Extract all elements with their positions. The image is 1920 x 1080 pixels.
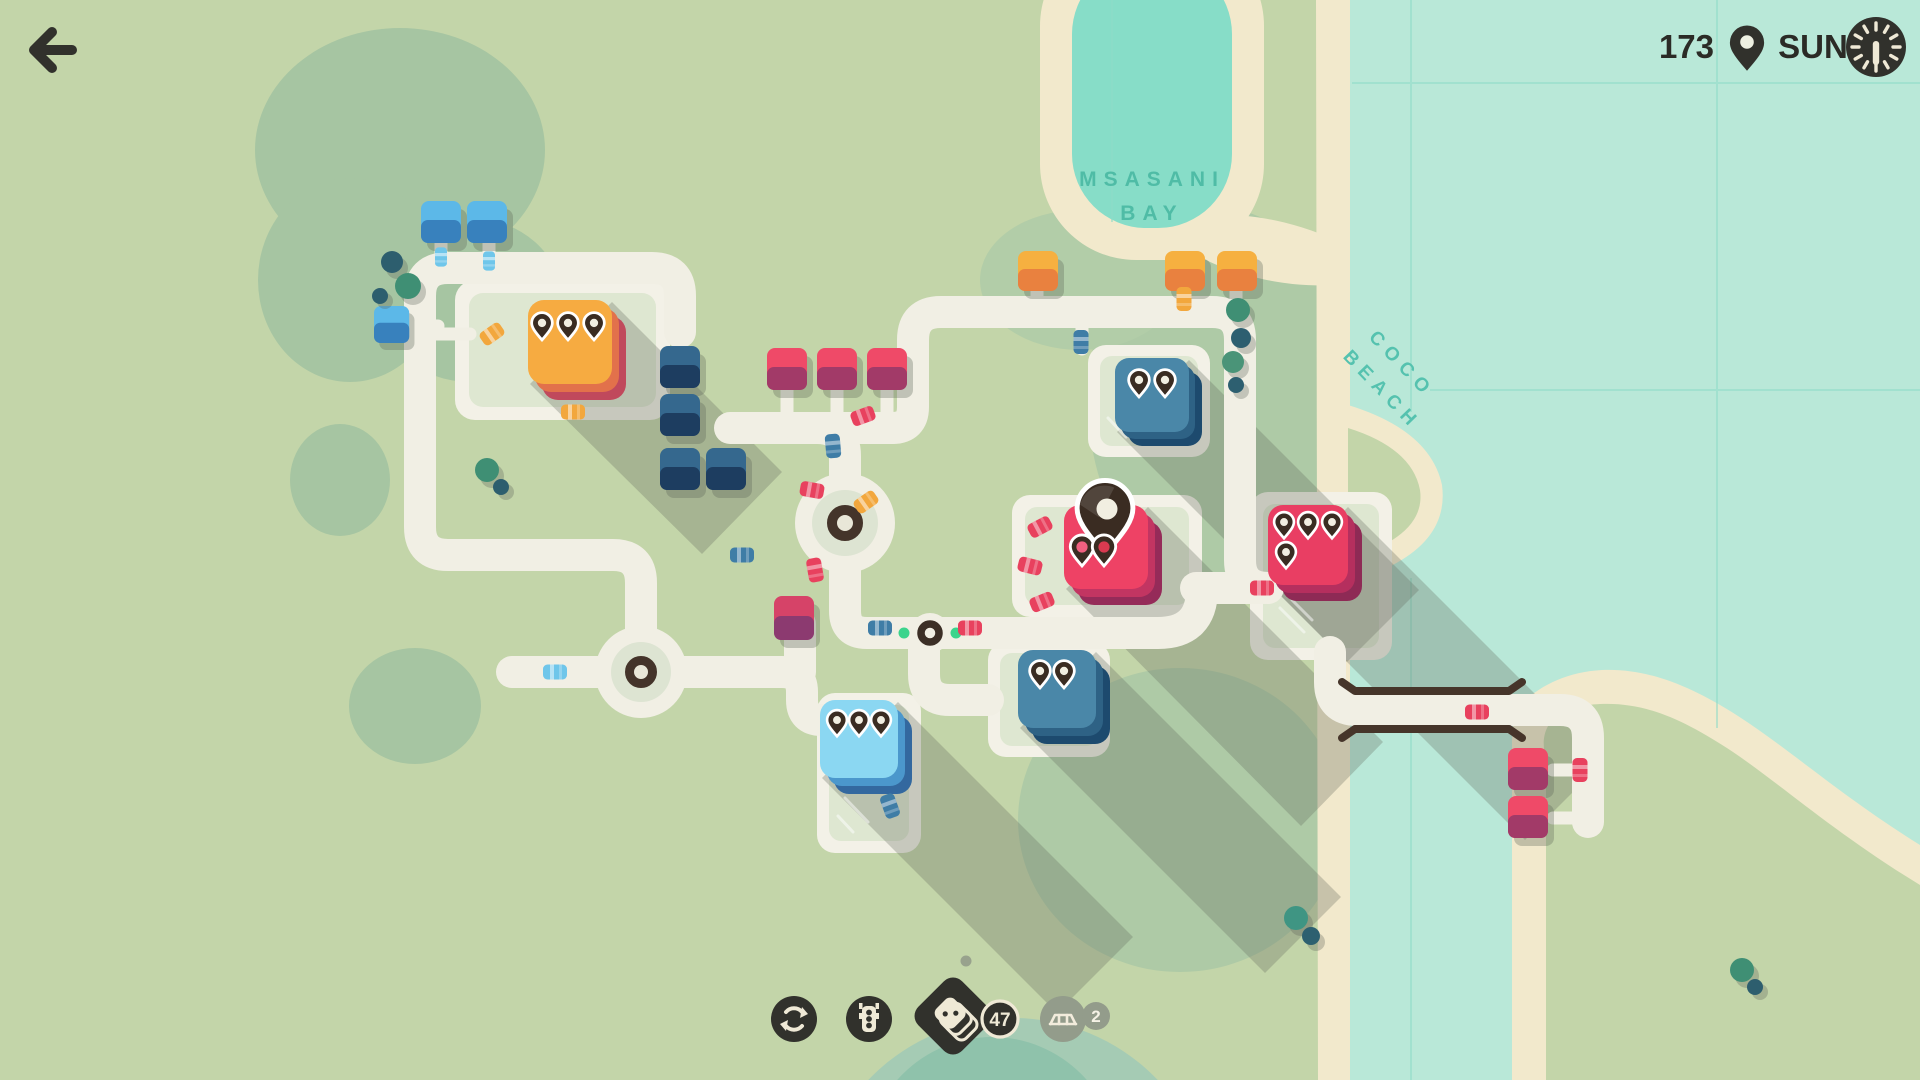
signal-green-west bbox=[899, 628, 910, 639]
bridges-count: 2 bbox=[1091, 1007, 1100, 1026]
game-map[interactable]: MSASANI BAY COCO BEACH bbox=[0, 0, 1920, 1080]
destination-crimson bbox=[1268, 505, 1362, 601]
bay-label-line1: MSASANI bbox=[1079, 168, 1225, 191]
clock-hand bbox=[1873, 41, 1879, 65]
page-indicator-dot bbox=[961, 956, 972, 967]
tiles-count: 47 bbox=[989, 1010, 1010, 1031]
destination-blue-south bbox=[1018, 650, 1110, 744]
roundabout-tool-button[interactable] bbox=[771, 996, 817, 1042]
roundabout-small bbox=[595, 626, 687, 718]
msasani-bay-water bbox=[1072, 0, 1232, 228]
trip-score: 173 bbox=[1659, 28, 1714, 65]
destination-blue-north bbox=[1115, 358, 1202, 446]
tiles-count-badge: 47 bbox=[982, 1001, 1018, 1037]
traffic-light-tool-button[interactable] bbox=[846, 996, 892, 1042]
destination-orange bbox=[528, 300, 626, 400]
day-of-week: SUN bbox=[1778, 28, 1848, 65]
destination-lightblue bbox=[820, 700, 912, 794]
bridges-count-badge: 2 bbox=[1082, 1002, 1110, 1030]
bay-label-line2: BAY bbox=[1120, 202, 1183, 225]
week-clock-icon[interactable] bbox=[1846, 17, 1906, 77]
game-screen: MSASANI BAY COCO BEACH bbox=[0, 0, 1920, 1080]
